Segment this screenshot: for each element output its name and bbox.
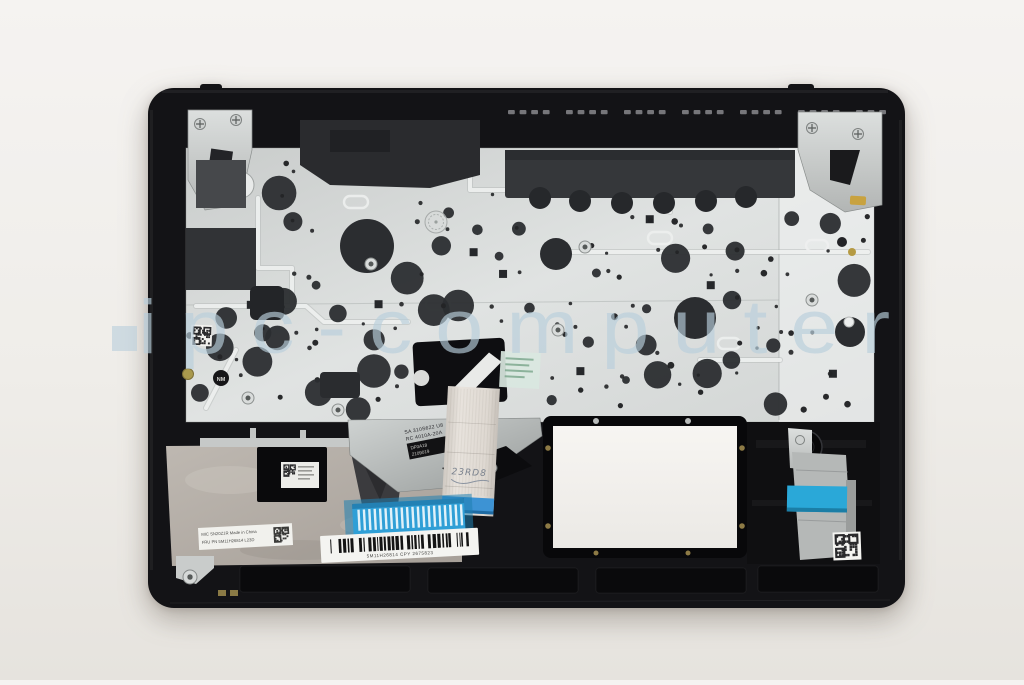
touchpad-cutout (543, 416, 747, 558)
panel-black-sticker (257, 447, 327, 502)
qr-sticker-right (833, 532, 862, 561)
product-photo: NM (0, 0, 1024, 680)
nm-stamp-text: NM (217, 377, 226, 383)
watermark-text: ipc-computer (138, 285, 913, 370)
gold-screw (183, 369, 194, 380)
watermark-square (112, 326, 137, 351)
watermark: ipc-computer (112, 285, 913, 370)
handwritten-mark: 23RD8 (451, 467, 487, 479)
nm-stamp: NM (213, 370, 229, 386)
speaker-area (747, 422, 880, 564)
